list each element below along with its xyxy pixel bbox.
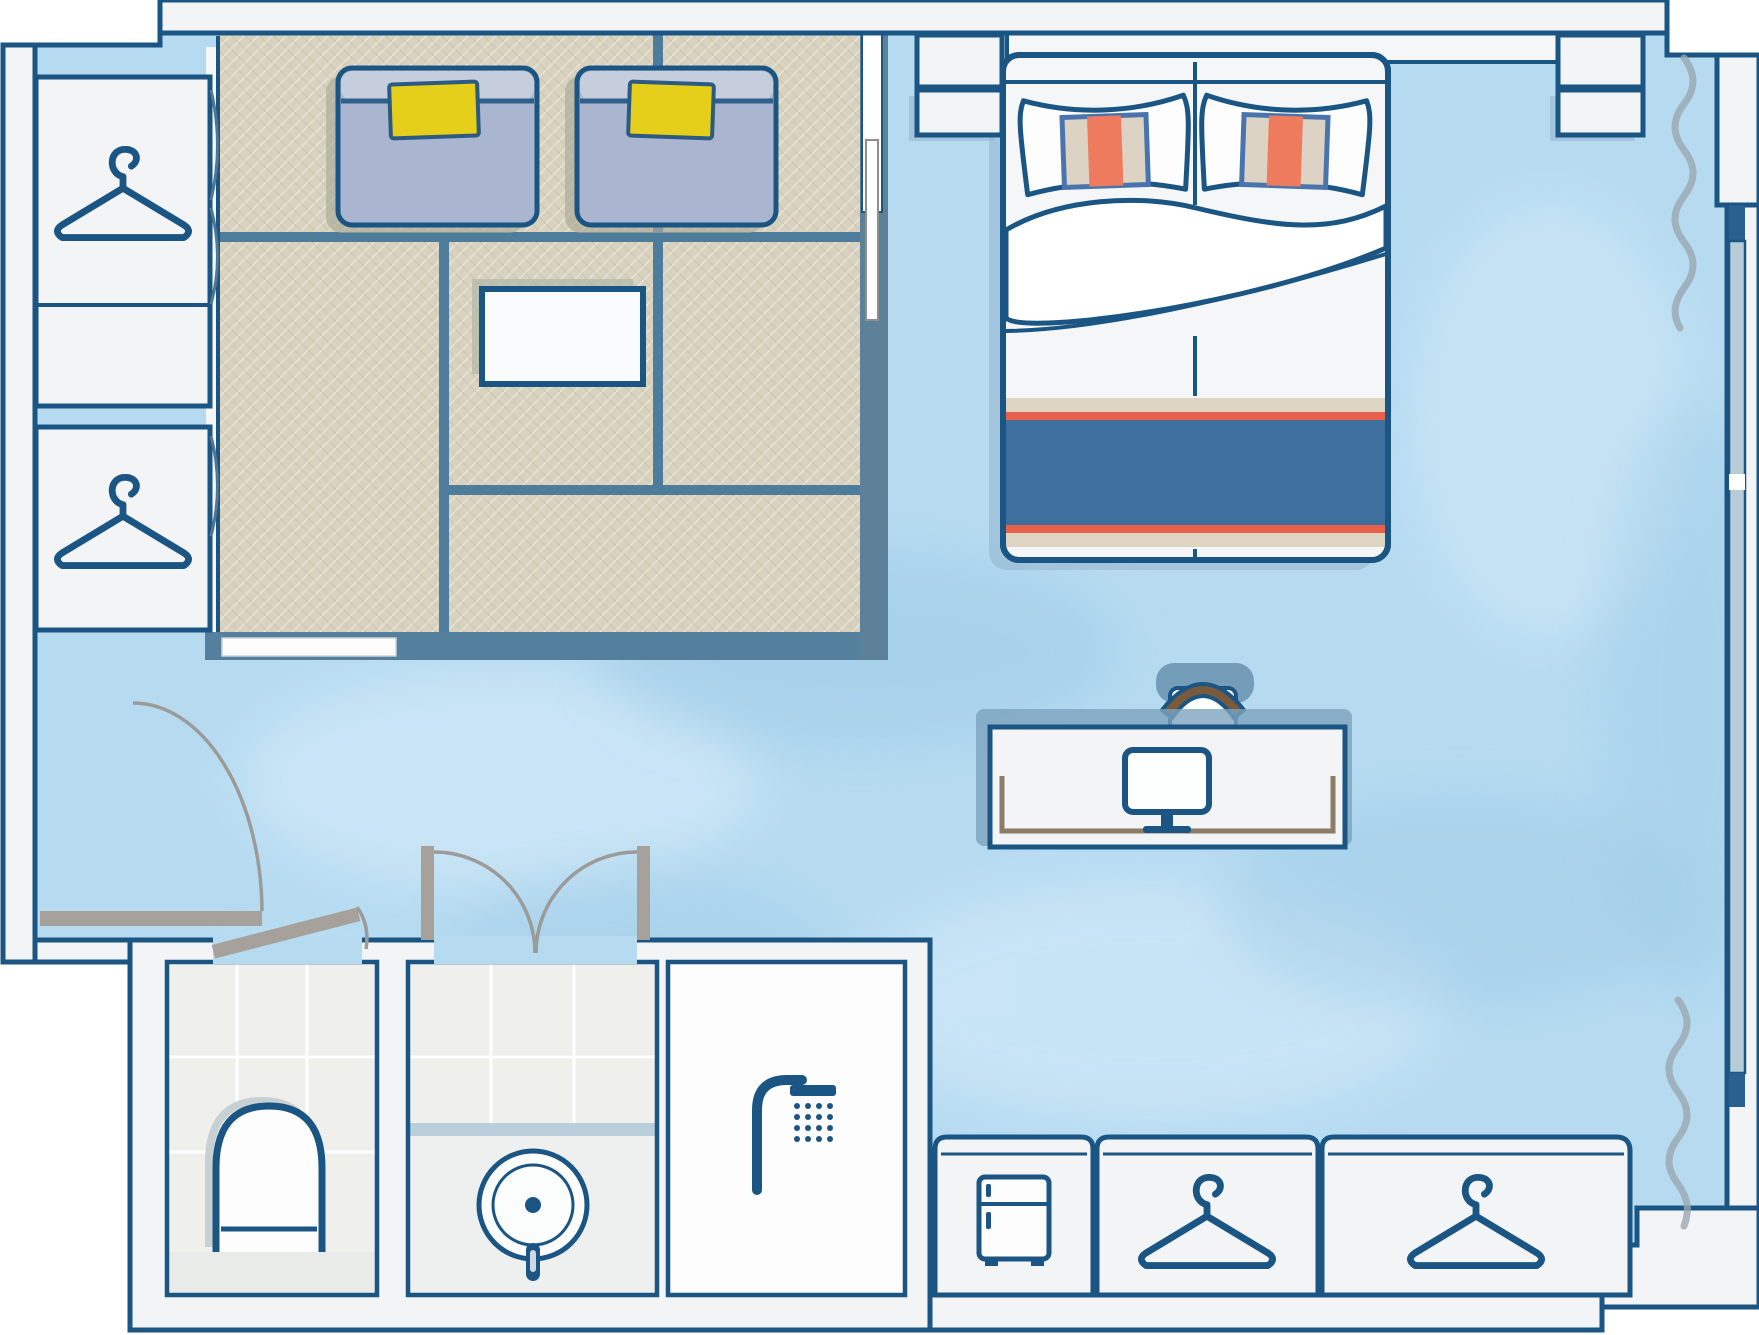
door-leaf [40, 911, 262, 926]
bed-pillow-right [1199, 95, 1370, 195]
pillow-accent [1267, 115, 1303, 186]
nightstand [1558, 35, 1643, 87]
door-post [637, 846, 650, 940]
platform-white-step [222, 638, 396, 656]
shower-room [668, 962, 905, 1295]
toilet-room [167, 962, 377, 1295]
nightstand [917, 35, 1002, 87]
top-wall [160, 0, 1667, 33]
window-glass [1729, 241, 1745, 1073]
bed-runner [1001, 398, 1391, 547]
right-top-wall [1717, 55, 1759, 205]
tile-floor [408, 962, 657, 1123]
futon-bed-2 [565, 68, 776, 233]
bed-pillow-left [1019, 95, 1190, 195]
futon-cushion [389, 81, 479, 138]
vanity-room [408, 962, 657, 1295]
entry-wall [35, 940, 130, 962]
sliding-door-panel [866, 140, 878, 320]
window-joint [1729, 474, 1745, 490]
nightstand [917, 90, 1002, 135]
closet-row-bottom [935, 1137, 1630, 1295]
futon-cushion [628, 82, 714, 139]
closet-tall [36, 77, 210, 406]
nightstand [1558, 90, 1643, 135]
sliding-partition [860, 30, 888, 660]
toilet [209, 1101, 322, 1252]
low-table [472, 279, 643, 384]
fridge-icon [979, 1177, 1049, 1266]
left-wall [3, 45, 35, 962]
window-right [1729, 205, 1745, 1107]
wardrobe-closet-left [36, 77, 218, 630]
closet-lower [36, 427, 210, 630]
counter-edge [408, 1123, 657, 1136]
toilet-step [167, 1252, 377, 1295]
futon-bed-1 [326, 68, 537, 233]
floor-plan-svg [0, 0, 1759, 1335]
door-post [421, 846, 434, 940]
pillow-accent [1087, 115, 1123, 186]
floor-plan-canvas [0, 0, 1759, 1335]
top-right-step [1667, 3, 1717, 55]
